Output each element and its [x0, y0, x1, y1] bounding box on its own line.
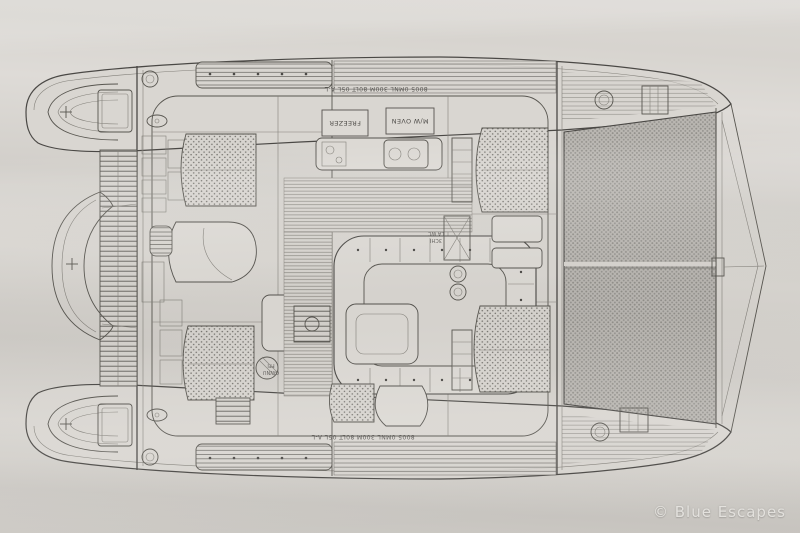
shower-bottom: [375, 386, 428, 426]
svg-text:FFI: FFI: [267, 362, 274, 368]
watermark: © Blue Escapes: [653, 503, 786, 521]
saloon-table: [346, 304, 418, 364]
owner-desk: [169, 222, 257, 282]
cockpit-bench-top: [196, 62, 332, 88]
aft-cabin-steps: [216, 398, 250, 424]
forward-locker-top: [492, 216, 542, 242]
freezer-label: FREEZER: [329, 119, 361, 127]
annotation-top: 8005 0MNL 300M 80LT 05L A-L: [324, 85, 428, 92]
trampoline-net: [564, 112, 716, 424]
microwave-label: M/W OVEN: [391, 117, 428, 125]
berth-bottom: [474, 306, 550, 392]
aft-berth: [183, 326, 254, 400]
galley-counter: [316, 138, 442, 170]
deck-plan-drawing: FREEZER M/W OVEN GWNU FFI: [0, 0, 800, 533]
owner-seat: [150, 226, 172, 256]
owner-cabin: [142, 134, 256, 302]
svg-text:LA WC: LA WC: [427, 230, 444, 236]
berth-bottom-center: [329, 384, 374, 422]
side-deck-bottom: [334, 442, 556, 475]
companionway-steps: [294, 306, 330, 342]
scanned-deck-plan: FREEZER M/W OVEN GWNU FFI: [0, 0, 800, 533]
forward-locker-bottom: [492, 248, 542, 268]
bow-rigging: [722, 104, 766, 432]
cockpit-bench-bottom: [196, 444, 332, 470]
annotation-bottom: 8005 0MNL 300M 80LT 05L A-L: [311, 433, 415, 440]
aft-walkway: [100, 150, 137, 386]
svg-text:3CHI: 3CHI: [430, 237, 442, 243]
